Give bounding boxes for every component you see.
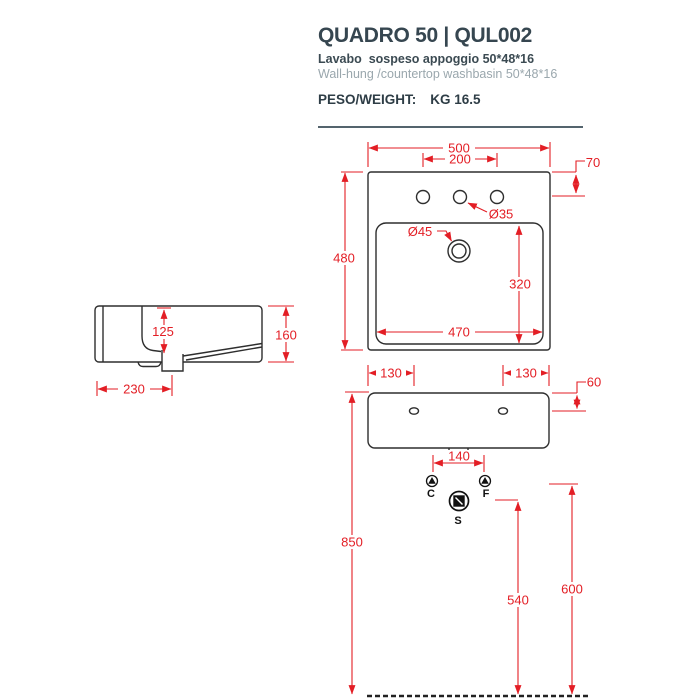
datasheet-page: QUADRO 50 | QUL002 Lavabo sospeso appogg… bbox=[0, 0, 700, 700]
dim-600: 600 bbox=[561, 582, 583, 597]
dim-160: 160 bbox=[275, 328, 297, 343]
technical-drawing: 500 200 70 Ø35 Ø45 480 320 bbox=[0, 0, 700, 700]
dim-140: 140 bbox=[448, 449, 470, 464]
dim-200: 200 bbox=[449, 152, 471, 167]
dim-70: 70 bbox=[586, 155, 600, 170]
plan-view bbox=[368, 172, 550, 350]
dim-130-right: 130 bbox=[515, 366, 537, 381]
drain-label: S bbox=[454, 515, 461, 527]
dim-540: 540 bbox=[507, 593, 529, 608]
basin-outline-plan bbox=[368, 172, 550, 350]
front-view bbox=[368, 393, 549, 455]
dim-320: 320 bbox=[509, 277, 531, 292]
dim-230: 230 bbox=[123, 382, 145, 397]
hot-water-label: F bbox=[483, 488, 490, 500]
dim-850: 850 bbox=[341, 535, 363, 550]
dim-125: 125 bbox=[152, 324, 174, 339]
ext-60 bbox=[552, 382, 586, 411]
dim-o35: Ø35 bbox=[489, 207, 514, 222]
dim-130-left: 130 bbox=[380, 366, 402, 381]
dim-470: 470 bbox=[448, 325, 470, 340]
ext-70 bbox=[552, 161, 585, 196]
basin-outline-front bbox=[368, 393, 549, 448]
dim-o45: Ø45 bbox=[408, 224, 433, 239]
dim-480: 480 bbox=[333, 251, 355, 266]
dim-60: 60 bbox=[587, 375, 601, 390]
connection-symbols: C F S bbox=[427, 476, 491, 528]
cold-water-label: C bbox=[427, 488, 435, 500]
